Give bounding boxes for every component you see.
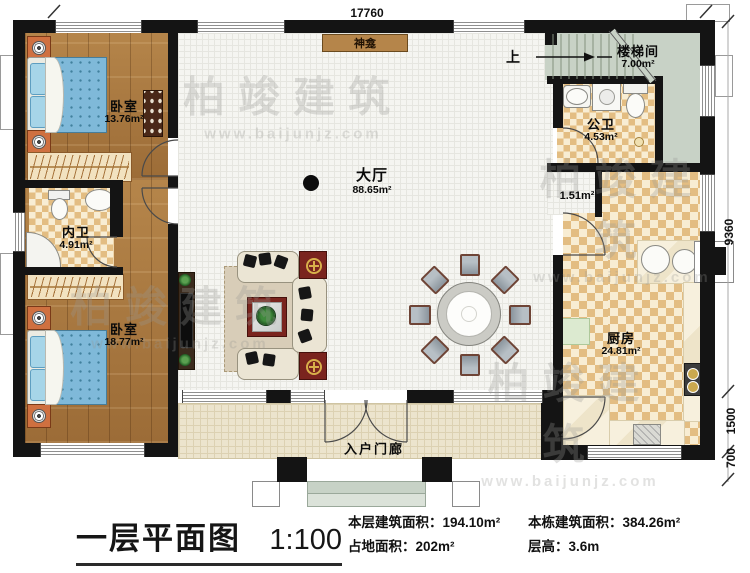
room-label-hall: 大厅 88.65m² <box>352 168 391 196</box>
lamp-icon <box>32 41 46 55</box>
wall-publicbath-right <box>655 80 663 172</box>
toilet-bowl <box>51 198 68 220</box>
title-block: 一层平面图 1:100 <box>76 513 342 566</box>
dimension-step-depth: 700 <box>724 448 738 468</box>
toilet-bowl <box>626 93 645 118</box>
room-label-bedroom1: 卧室 13.76m² <box>104 100 143 126</box>
porch-column <box>277 457 307 482</box>
window <box>700 65 715 117</box>
wall-porch-west <box>168 390 178 457</box>
washer-drum-icon <box>599 89 615 105</box>
burner-icon <box>687 381 699 393</box>
hanger-rail-icon <box>30 155 129 179</box>
pier-base <box>452 481 480 507</box>
room-label-inner-bath: 内卫 4.91m² <box>59 226 92 252</box>
wall-bedroom1-hall <box>168 33 178 138</box>
window-sill <box>715 55 733 97</box>
nightstand <box>27 130 51 154</box>
porch-step <box>307 493 426 507</box>
sofa-pillow <box>298 286 312 300</box>
dining-table <box>437 282 501 346</box>
lamp-icon <box>32 135 46 149</box>
window <box>453 390 543 403</box>
wall-publicbath-top <box>547 76 663 84</box>
plant-icon <box>179 354 191 366</box>
room-label-bedroom2: 卧室 18.77m² <box>104 323 143 349</box>
wall-stair-stub <box>545 33 557 45</box>
kitchen-entry-floor <box>563 395 610 447</box>
watermark-url: www.baijunjz.com <box>480 473 660 490</box>
nightstand <box>27 306 51 330</box>
hanger-rail-icon <box>30 277 121 297</box>
sofa-pillow <box>258 252 272 266</box>
porch-label: 入户门廊 <box>344 439 404 458</box>
stat-building-area: 本栋建筑面积：384.26m² <box>528 516 680 530</box>
coffee-table <box>247 297 287 337</box>
wardrobe <box>27 274 124 300</box>
dining-chair <box>460 354 480 376</box>
window <box>182 390 267 403</box>
washing-machine <box>592 83 621 111</box>
side-table <box>299 352 327 380</box>
wardrobe <box>27 152 132 182</box>
plan-title: 一层平面图 <box>76 513 241 558</box>
wall-hall-south-pier <box>265 390 290 403</box>
stat-floor-area: 本层建筑面积：194.10m² <box>348 516 500 530</box>
tv <box>180 293 193 348</box>
window <box>700 174 715 232</box>
kitchen-sink <box>641 245 670 274</box>
dimension-overall-width: 17760 <box>350 6 383 20</box>
window <box>197 20 285 33</box>
bathroom-sink <box>566 88 588 105</box>
window <box>453 20 525 33</box>
corridor-area-label: 1.51m² <box>560 190 595 202</box>
room-label-kitchen: 厨房 24.81m² <box>601 332 640 358</box>
window <box>290 390 325 403</box>
pier-base <box>252 481 280 507</box>
table-ornament-icon <box>306 258 322 274</box>
stat-floor-height: 层高：3.6m <box>528 540 680 554</box>
stats-column-1: 本层建筑面积：194.10m² 占地面积：202m² <box>348 516 500 563</box>
wall-porch-east <box>541 390 563 460</box>
plant-icon <box>179 274 191 286</box>
dresser <box>143 90 163 137</box>
dimension-overall-depth: 9360 <box>722 219 736 246</box>
bed-blanket <box>45 330 64 405</box>
wall-corridor-stub <box>595 172 602 217</box>
wall-innerbath-bottom <box>25 267 123 275</box>
shrine-label: 神龛 <box>323 35 407 51</box>
kitchen-mat <box>562 318 590 345</box>
lamp-icon <box>32 311 46 325</box>
wall-kitchen-left <box>553 255 563 390</box>
stat-footprint-area: 占地面积：202m² <box>348 540 500 554</box>
dining-chair <box>509 305 531 325</box>
nightstand <box>27 404 51 428</box>
table-ornament-icon <box>306 359 322 375</box>
stats-column-2: 本栋建筑面积：384.26m² 层高：3.6m <box>528 516 680 563</box>
burner-icon <box>687 368 699 380</box>
pier-east <box>700 247 726 275</box>
sofa-pillow <box>262 353 276 367</box>
structural-column <box>303 175 319 191</box>
kitchen-appliance <box>633 424 661 445</box>
floor-drain-icon <box>634 137 644 147</box>
stairs-up-label: 上 <box>506 47 520 67</box>
wall-mid-horizontal <box>547 163 715 172</box>
sofa-pillow <box>245 351 259 365</box>
side-table <box>299 251 327 279</box>
room-label-public-bath: 公卫 4.53m² <box>584 118 617 144</box>
wall-hall-south-pier <box>407 390 453 403</box>
dimension-porch-depth: 1500 <box>724 408 738 435</box>
wall-innerbath-top <box>25 180 123 188</box>
window <box>13 212 25 252</box>
bed-blanket <box>45 57 64 133</box>
window <box>40 443 145 457</box>
dining-chair <box>460 254 480 276</box>
lamp-icon <box>32 409 46 423</box>
wall-publicbath-left <box>553 84 563 128</box>
sofa-pillow <box>300 308 313 321</box>
window <box>55 20 142 33</box>
plan-scale: 1:100 <box>269 524 342 557</box>
window <box>587 446 682 459</box>
dining-chair <box>409 305 431 325</box>
lazy-susan <box>461 306 477 322</box>
room-label-stairwell: 楼梯间 7.00m² <box>617 45 659 71</box>
shrine-cabinet: 神龛 <box>322 34 408 52</box>
porch-column <box>422 457 452 482</box>
wall-stub <box>168 176 178 188</box>
wall-innerbath-right <box>110 188 123 237</box>
floor-plan-canvas: 神龛 <box>0 0 750 573</box>
plant-icon <box>257 307 275 325</box>
stairwell-floor-side <box>657 80 700 165</box>
